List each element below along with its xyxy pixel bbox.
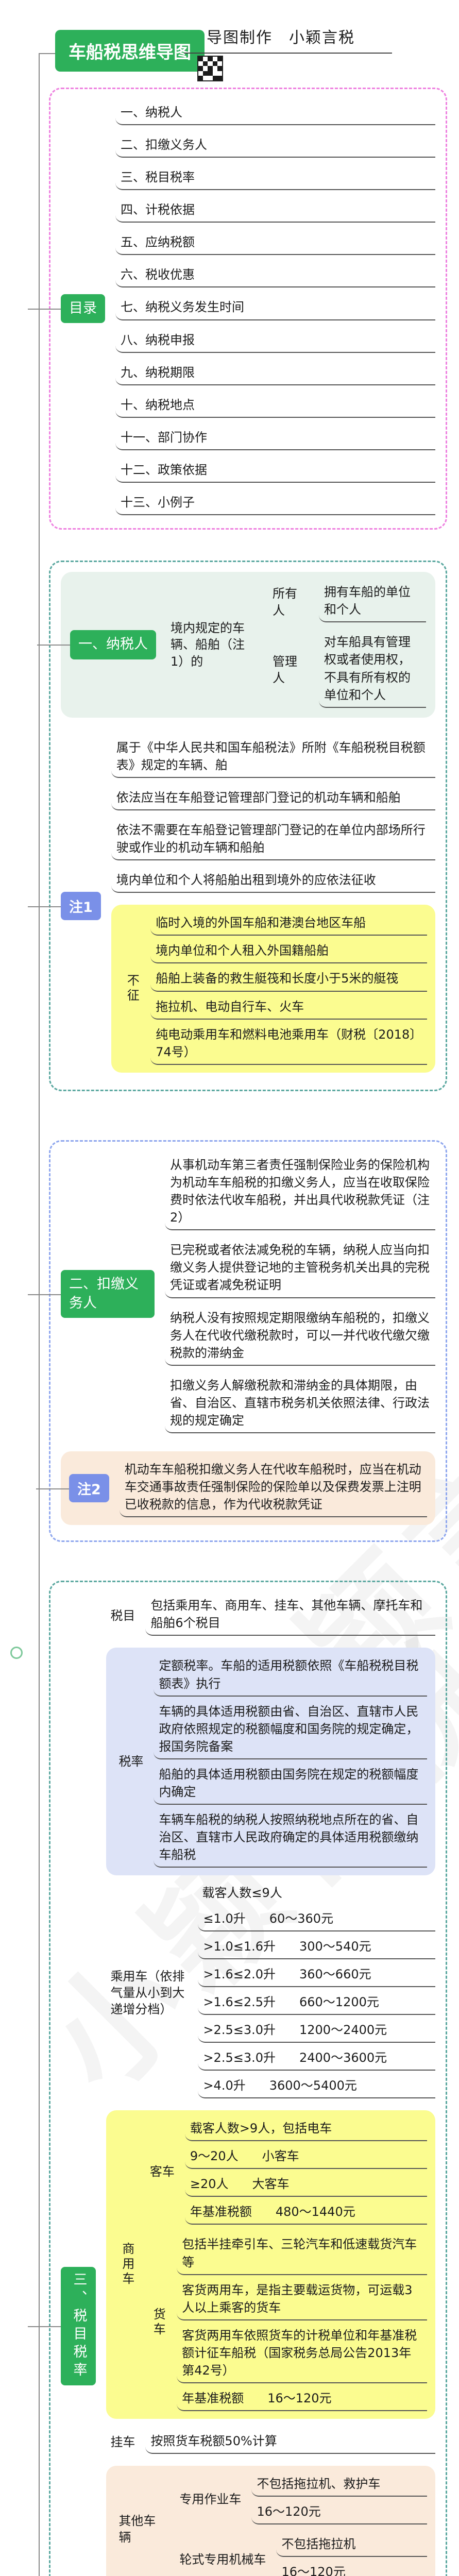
range: >4.0升 xyxy=(203,2078,245,2093)
section1-panel: 一、纳税人 境内规定的车辆、船舶（注1）的 所有人 拥有车船的单位和个人 管理人… xyxy=(61,572,435,717)
note1-item: 依法应当在车船登记管理部门登记的机动车辆和船舶 xyxy=(111,787,435,810)
exempt-item: 纯电动乘用车和燃料电池乘用车（财税〔2018〕74号） xyxy=(150,1024,427,1065)
section2-item: 扣缴义务人解缴税款和滞纳金的具体期限，由省、自治区、直辖市税务机关依照法律、行政… xyxy=(165,1375,435,1433)
displacement-row: >2.5≤3.0升1200～2400元 xyxy=(198,2020,435,2043)
other-vehicle-group: 其他车辆 专用作业车 不包括拖拉机、救护车 16～120元 轮式专用机械车 不包… xyxy=(106,2466,435,2576)
range: ≥20人 xyxy=(190,2177,229,2191)
range: >1.0≤1.6升 xyxy=(203,1939,276,1954)
exempt-label: 不征 xyxy=(120,972,144,1006)
amount: 360～660元 xyxy=(299,1967,371,1981)
truck-item: 包括半挂牵引车、三轮汽车和低速载货汽车等 xyxy=(177,2234,427,2275)
note1-item: 依法不需要在车船登记管理部门登记的在单位内部场所行驶或作业的机动车辆和船舶 xyxy=(111,820,435,860)
bus-row: 年基准税额480～1440元 xyxy=(185,2201,427,2225)
truck-base-row: 年基准税额16～120元 xyxy=(177,2388,427,2411)
toc-item: 九、纳税期限 xyxy=(115,362,435,385)
displacement-row: >1.0≤1.6升300～540元 xyxy=(198,1936,435,1959)
toc-item: 七、纳税义务发生时间 xyxy=(115,297,435,320)
taxrate-group: 税率 定额税率。车船的适用税额依照《车船税税目税额表》执行 车辆的具体适用税额由… xyxy=(106,1648,435,1875)
manager-text: 对车船具有管理权或者使用权，不具有所有权的单位和个人 xyxy=(319,632,426,707)
taxrate-item: 车辆车船税的纳税人按照纳税地点所在的省、自治区、直辖市人民政府确定的具体适用税额… xyxy=(154,1809,427,1868)
special-work-vehicle-label: 专用作业车 xyxy=(175,2489,245,2510)
taxrate-item: 车辆的具体适用税额由省、自治区、直辖市人民政府依照规定的税额幅度和国务院的规定确… xyxy=(154,1701,427,1759)
range: 年基准税额 xyxy=(182,2391,244,2405)
note1-item: 属于《中华人民共和国车船税法》所附《车船税税目税额表》规定的车辆、舶 xyxy=(111,737,435,778)
section2-boundary: 二、扣缴义务人 从事机动车第三者责任强制保险业务的保险机构为机动车车船税的扣缴义… xyxy=(49,1140,447,1542)
section3-boundary: 三、税目税率 税目 包括乘用车、商用车、挂车、其他车辆、摩托车和船舶6个税目 税… xyxy=(49,1581,447,2576)
range: >1.6≤2.0升 xyxy=(203,1967,276,1981)
amount: 660～1200元 xyxy=(299,1995,379,2009)
displacement-row: ≤1.0升60～360元 xyxy=(198,1908,435,1931)
truck-label: 货车 xyxy=(146,2306,171,2340)
commercial-vehicle-group: 商用车 客车 载客人数>9人，包括电车 9～20人小客车 ≥20人大客车 年基准… xyxy=(106,2110,435,2419)
taxitems-text: 包括乘用车、商用车、挂车、其他车辆、摩托车和船舶6个税目 xyxy=(145,1595,435,1636)
taxrate-label: 税率 xyxy=(114,1751,147,1772)
amount: 2400～3600元 xyxy=(299,2050,387,2065)
taxitems-label: 税目 xyxy=(106,1605,139,1626)
toc-item: 一、纳税人 xyxy=(115,102,435,125)
range: 年基准税额 xyxy=(190,2205,252,2219)
note1-exempt-group: 不征 临时入境的外国车船和港澳台地区车船 境内单位和个人租入外国籍船舶 船舶上装… xyxy=(111,905,435,1072)
section1-stem: 境内规定的车辆、船舶（注1）的 xyxy=(166,618,262,672)
header: 车船税思维导图 导图制作 小颖言税 xyxy=(0,0,459,88)
section1-node: 一、纳税人 xyxy=(70,630,156,659)
note2-text: 机动车车船税扣缴义务人在代收车船税时，应当在机动车交通事故责任强制保险的保险单以… xyxy=(120,1459,427,1517)
owner-text: 拥有车船的单位和个人 xyxy=(319,582,426,622)
exempt-item: 临时入境的外国车船和港澳台地区车船 xyxy=(150,912,427,936)
bus-label: 客车 xyxy=(146,2161,179,2182)
section1-boundary: 一、纳税人 境内规定的车辆、船舶（注1）的 所有人 拥有车船的单位和个人 管理人… xyxy=(49,561,447,1091)
note1-node: 注1 xyxy=(61,892,101,920)
toc-item: 四、计税依据 xyxy=(115,199,435,223)
special-work-note: 不包括拖拉机、救护车 xyxy=(251,2473,427,2497)
exempt-item: 境内单位和个人租入外国籍船舶 xyxy=(150,940,427,963)
exempt-item: 船舶上装备的救生艇筏和长度小于5米的艇筏 xyxy=(150,968,427,991)
taxrate-item: 船舶的具体适用税额由国务院在规定的税额幅度内确定 xyxy=(154,1764,427,1805)
truck-item: 客货两用车，是指主要载运货物，可运载3人以上乘客的货车 xyxy=(177,2280,427,2320)
range: ≤1.0升 xyxy=(203,1911,245,1926)
amount: 小客车 xyxy=(262,2149,299,2163)
passenger-car-header: 载客人数≤9人 xyxy=(198,1883,435,1903)
note1-item: 境内单位和个人将船舶出租到境外的应依法征收 xyxy=(111,870,435,893)
amount: 16～120元 xyxy=(267,2391,331,2405)
toc-node: 目录 xyxy=(61,294,105,323)
branch-collapse-dot xyxy=(10,1647,23,1659)
taxrate-item: 定额税率。车船的适用税额依照《车船税税目税额表》执行 xyxy=(154,1655,427,1696)
section2-item: 已完税或者依法减免税的车辆，纳税人应当向扣缴义务人提供登记地的主管税务机关出具的… xyxy=(165,1240,435,1298)
special-work-amount: 16～120元 xyxy=(251,2501,427,2524)
note2-panel: 注2 机动车车船税扣缴义务人在代收车船税时，应当在机动车交通事故责任强制保险的保… xyxy=(61,1451,435,1525)
root-topic: 车船税思维导图 xyxy=(55,30,205,72)
passenger-car-label: 乘用车（依排气量从小到大递增分档） xyxy=(106,1966,192,2020)
owner-label: 所有人 xyxy=(268,583,313,621)
wheeled-machinery-label: 轮式专用机械车 xyxy=(175,2549,270,2570)
credit-topic: 导图制作 小颖言税 xyxy=(184,21,392,54)
other-vehicle-label: 其他车辆 xyxy=(114,2511,169,2548)
mindmap-spine xyxy=(39,54,40,2576)
wheeled-machinery-amount: 16～120元 xyxy=(276,2562,427,2576)
toc-item: 十三、小例子 xyxy=(115,492,435,515)
amount: 60～360元 xyxy=(269,1911,333,1926)
truck-item: 客货两用车依照货车的计税单位和年基准税额计征车船税（国家税务总局公告2013年第… xyxy=(177,2325,427,2383)
trailer-text: 按照货车税额50%计算 xyxy=(145,2431,435,2454)
toc-item: 二、扣缴义务人 xyxy=(115,134,435,158)
section2-item: 从事机动车第三者责任强制保险业务的保险机构为机动车车船税的扣缴义务人，应当在收取… xyxy=(165,1155,435,1230)
range: >2.5≤3.0升 xyxy=(203,2050,276,2065)
commercial-vehicle-label: 商用车 xyxy=(114,2240,139,2289)
amount: 1200～2400元 xyxy=(299,2023,387,2037)
amount: 大客车 xyxy=(252,2177,289,2191)
displacement-row: >4.0升3600～5400元 xyxy=(198,2075,435,2098)
section3-node: 三、税目税率 xyxy=(61,2267,96,2385)
toc-item: 五、应纳税额 xyxy=(115,232,435,255)
note2-node: 注2 xyxy=(69,1474,109,1502)
toc-item: 六、税收优惠 xyxy=(115,264,435,287)
range: >2.5≤3.0升 xyxy=(203,2023,276,2037)
trailer-label: 挂车 xyxy=(106,2432,139,2452)
manager-label: 管理人 xyxy=(268,651,313,689)
exempt-item: 拖拉机、电动自行车、火车 xyxy=(150,996,427,1020)
bus-row: ≥20人大客车 xyxy=(185,2174,427,2197)
range: >1.6≤2.5升 xyxy=(203,1995,276,2009)
toc-item: 十二、政策依据 xyxy=(115,460,435,483)
bus-header: 载客人数>9人，包括电车 xyxy=(185,2118,427,2141)
amount: 300～540元 xyxy=(299,1939,371,1954)
toc-item: 十一、部门协作 xyxy=(115,427,435,450)
displacement-row: >1.6≤2.0升360～660元 xyxy=(198,1964,435,1987)
section2-item: 纳税人没有按照规定期限缴纳车船税的，扣缴义务人在代收代缴税款时，可以一并代收代缴… xyxy=(165,1308,435,1366)
range: 9～20人 xyxy=(190,2149,239,2163)
qr-code-icon xyxy=(197,56,223,81)
displacement-row: >2.5≤3.0升2400～3600元 xyxy=(198,2047,435,2071)
toc-item: 八、纳税申报 xyxy=(115,330,435,353)
bus-row: 9～20人小客车 xyxy=(185,2146,427,2169)
amount: 3600～5400元 xyxy=(269,2078,357,2093)
toc-boundary: 目录 一、纳税人 二、扣缴义务人 三、税目税率 四、计税依据 五、应纳税额 六、… xyxy=(49,88,447,530)
wheeled-machinery-note: 不包括拖拉机 xyxy=(276,2534,427,2557)
toc-item: 十、纳税地点 xyxy=(115,395,435,418)
section2-node: 二、扣缴义务人 xyxy=(61,1270,155,1318)
displacement-row: >1.6≤2.5升660～1200元 xyxy=(198,1992,435,2015)
amount: 480～1440元 xyxy=(276,2205,355,2219)
toc-item: 三、税目税率 xyxy=(115,167,435,190)
